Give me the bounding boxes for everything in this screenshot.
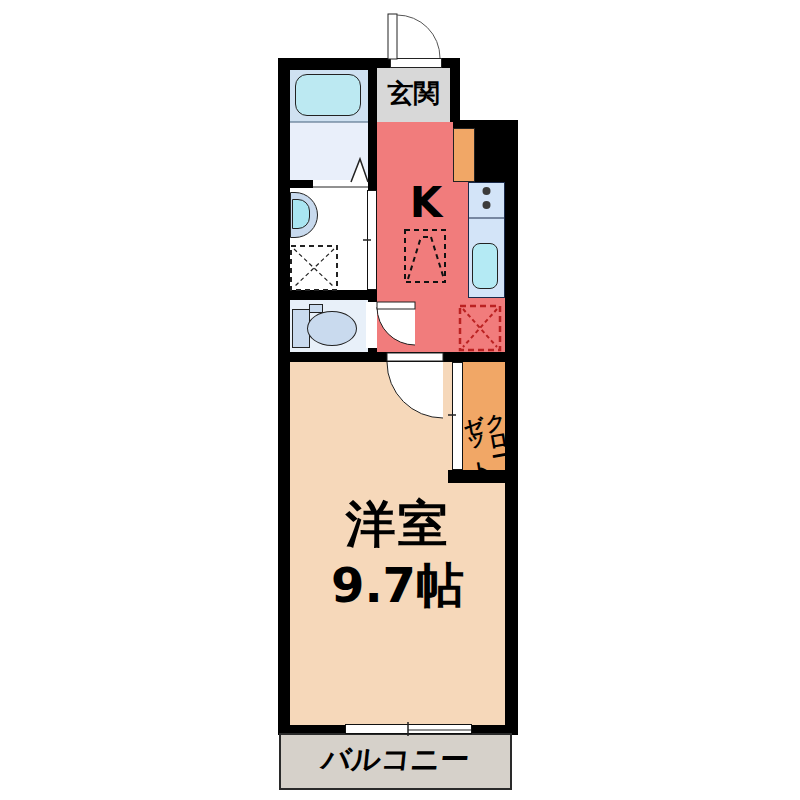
kitchen-label: K — [377, 181, 475, 225]
bathroom-door-gap — [313, 180, 368, 188]
cabinet-icon — [453, 128, 475, 182]
room-label: 洋室 — [290, 498, 505, 551]
balcony-window-icon — [345, 724, 472, 734]
toilet-bowl-icon — [307, 311, 357, 346]
bathtub-icon — [295, 74, 361, 116]
entrance-threshold — [390, 58, 442, 68]
washbasin-bowl-icon — [292, 199, 310, 229]
toilet-button-icon — [309, 304, 323, 313]
wall-notch — [460, 58, 518, 120]
balcony-label: バルコニー — [277, 744, 513, 774]
toilet-door-gap — [366, 302, 377, 348]
washroom-sliding-door-icon — [367, 190, 377, 290]
floor-plan: 玄関 K クロー ゼット 洋室 9.7帖 バルコニー — [0, 0, 800, 800]
room-size-label: 9.7帖 — [290, 560, 505, 610]
entrance-door-arc-icon — [388, 14, 440, 59]
kitchen-sink-icon — [472, 243, 498, 289]
entrance-label: 玄関 — [377, 80, 450, 107]
bathroom-lower-area — [290, 122, 368, 180]
